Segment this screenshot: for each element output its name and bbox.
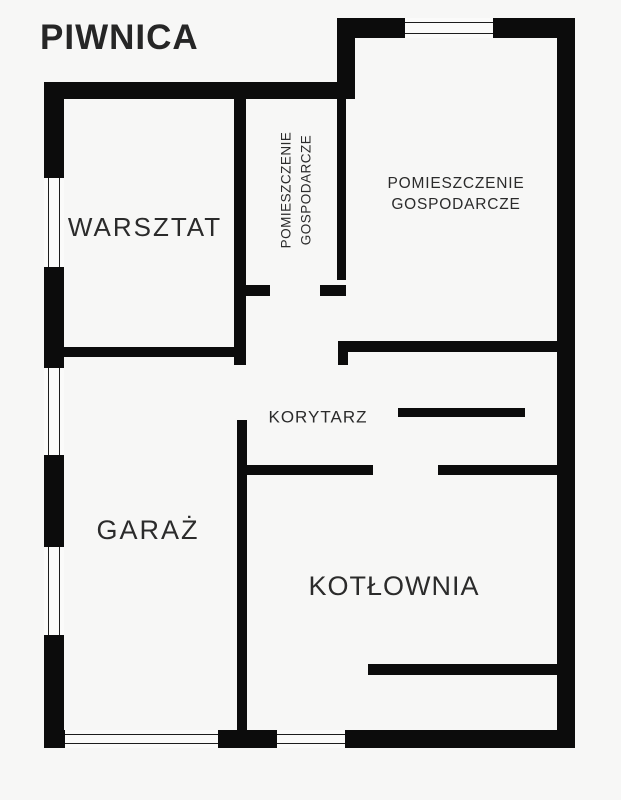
room-label-garaz: GARAŻ xyxy=(96,514,199,548)
wall-small-room-bottom-right xyxy=(320,285,346,296)
room-label-korytarz: KORYTARZ xyxy=(269,406,368,427)
outer-wall-right xyxy=(557,18,575,748)
window-left-upper xyxy=(44,178,64,267)
room-label-pomieszczenie-gospodarcze-small-line: POMIESZCZENIE xyxy=(276,132,296,249)
window-left-middle xyxy=(44,368,64,455)
outer-wall-left-a xyxy=(44,82,64,178)
wall-warsztat-bottom xyxy=(64,347,246,357)
window-top-lines xyxy=(405,22,493,34)
room-label-garaz-line: GARAŻ xyxy=(96,514,199,548)
wall-bigroom-bottom-tail xyxy=(338,341,348,365)
outer-wall-top-right-a xyxy=(337,18,405,38)
garage-door-opening xyxy=(65,730,218,748)
window-left-lower xyxy=(44,547,64,635)
plan-title: PIWNICA xyxy=(40,18,199,58)
bottom-opening xyxy=(277,730,345,748)
room-label-pomieszczenie-gospodarcze-large-line: GOSPODARCZE xyxy=(388,195,525,216)
room-label-warsztat: WARSZTAT xyxy=(68,211,222,244)
window-left-upper-lines xyxy=(48,178,60,267)
outer-wall-bottom-mid xyxy=(218,730,277,748)
wall-kotlownia-inner xyxy=(368,664,557,675)
wall-corridor-bottom-left xyxy=(237,465,373,475)
window-left-middle-lines xyxy=(48,368,60,455)
wall-bigroom-bottom xyxy=(338,341,557,352)
wall-corridor-bottom-right xyxy=(438,465,557,475)
wall-corridor-partition xyxy=(398,408,525,417)
room-label-kotlownia: KOTŁOWNIA xyxy=(308,570,479,604)
window-left-lower-lines xyxy=(48,547,60,635)
outer-wall-bottom-right xyxy=(345,730,575,748)
outer-wall-left-b xyxy=(44,267,64,368)
wall-warsztat-right xyxy=(234,99,246,365)
room-label-korytarz-line: KORYTARZ xyxy=(269,406,368,427)
room-label-pomieszczenie-gospodarcze-small-line: GOSPODARCZE xyxy=(296,132,316,249)
wall-garage-divider xyxy=(237,420,247,730)
outer-wall-left-d xyxy=(44,635,64,748)
room-label-pomieszczenie-gospodarcze-large-line: POMIESZCZENIE xyxy=(388,174,525,195)
bottom-opening-lines xyxy=(277,734,345,744)
wall-small-room-bottom-left xyxy=(234,285,270,296)
window-top xyxy=(405,18,493,38)
room-label-kotlownia-line: KOTŁOWNIA xyxy=(308,570,479,604)
room-label-warsztat-line: WARSZTAT xyxy=(68,211,222,244)
room-label-pomieszczenie-gospodarcze-small: POMIESZCZENIEGOSPODARCZE xyxy=(276,132,315,249)
garage-door-opening-lines xyxy=(65,734,218,744)
wall-bigroom-left xyxy=(337,99,346,280)
room-label-pomieszczenie-gospodarcze-large: POMIESZCZENIEGOSPODARCZE xyxy=(388,174,525,216)
floor-plan: PIWNICA WARSZTATPOMIESZCZENIEGOSPODARCZE… xyxy=(0,0,621,800)
outer-wall-top-left xyxy=(44,82,355,99)
outer-wall-left-c xyxy=(44,455,64,547)
